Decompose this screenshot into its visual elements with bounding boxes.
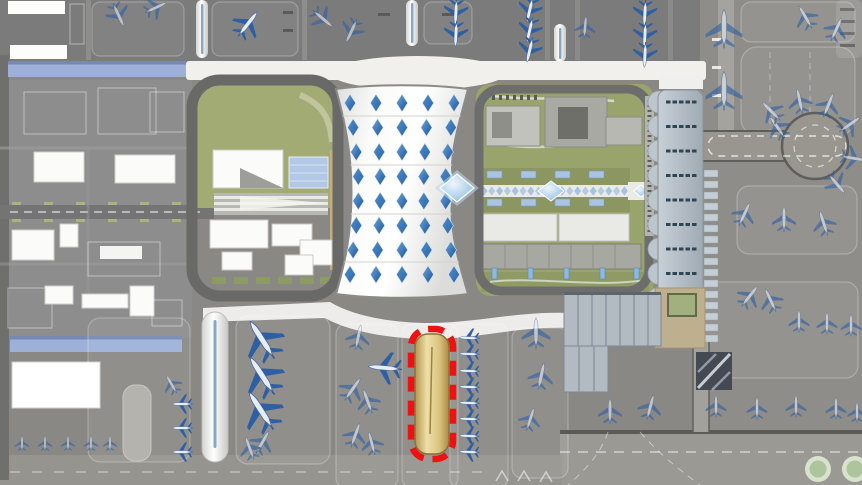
bay-skylight-dash [686,101,691,104]
axis-skylight-rect [589,171,604,178]
building [10,45,67,59]
bay-skylight-dash [686,223,691,226]
large-building [12,362,100,408]
bay-skylight-dash [666,199,671,202]
stand-bar [704,335,718,342]
axis-skylight-rect [555,199,570,206]
stand-bar [704,313,718,320]
blue-canopy-tick [600,268,605,279]
bay-skylight-dash [666,272,671,275]
green-roof-building [668,294,696,316]
gtc-south-buildings [481,214,649,292]
blue-canopy-tick [528,268,533,279]
bay-skylight-dash [666,125,671,128]
stand-bar [704,258,718,265]
stand-bar [704,192,718,199]
blue-canopy-tick [492,268,497,279]
bay-skylight-dash [679,272,684,275]
bay-skylight-dash [686,248,691,251]
stand-bar [704,203,718,210]
bay-skylight-dash [666,248,671,251]
bay-skylight-dash [679,248,684,251]
bay-skylight-dash [673,125,678,128]
bay-skylight-dash [686,125,691,128]
bay-skylight-dash [692,174,697,177]
bay-skylight-dash [673,101,678,104]
bay-skylight-dash [679,125,684,128]
bay-skylight-dash [692,248,697,251]
rail-platforms [214,193,328,215]
stand-bar [704,170,718,177]
bay-skylight-dash [692,101,697,104]
stand-pad [123,385,151,461]
bay-skylight-dash [666,174,671,177]
bay-skylight-dash [692,223,697,226]
bay-skylight-dash [673,150,678,153]
bay-skylight-dash [679,101,684,104]
stand-bar [704,236,718,243]
bay-skylight-dash [692,125,697,128]
highlighted-stand-pier[interactable] [411,329,453,459]
gtc-block [476,84,654,296]
axis-skylight-rect [521,171,536,178]
bay-skylight-dash [686,150,691,153]
stand-bar [704,324,718,331]
bay-skylight-dash [673,248,678,251]
terminal-main [330,85,479,298]
bay-skylight-dash [686,199,691,202]
stand-bar [704,280,718,287]
bay-skylight-dash [673,223,678,226]
bay-skylight-dash [692,199,697,202]
stand-bar [704,247,718,254]
west-edge-road [0,55,9,480]
bay-skylight-dash [686,174,691,177]
gtc-axis [478,168,654,212]
hatched-ramp [696,352,732,390]
road-edge [560,430,862,434]
stand-bar [704,181,718,188]
tree [810,461,827,478]
blue-canopy-tick [634,268,639,279]
bay-skylight-dash [686,272,691,275]
blue-canopy-tick [564,268,569,279]
stand-bar [704,291,718,298]
stand-bar [704,225,718,232]
axis-skylight-rect [589,199,604,206]
bay-skylight-dash [666,150,671,153]
building [8,1,65,14]
bay-skylight-dash [679,199,684,202]
airport-plan [0,0,862,485]
axis-skylight-rect [487,199,502,206]
stand-bar [704,269,718,276]
bay-skylight-dash [692,272,697,275]
axis-skylight-rect [487,171,502,178]
axis-skylight-rect [521,199,536,206]
bay-skylight-dash [673,174,678,177]
bay-skylight-dash [679,150,684,153]
bay-skylight-dash [666,223,671,226]
bay-skylight-dash [673,199,678,202]
bay-skylight-dash [666,101,671,104]
bay-skylight-dash [679,223,684,226]
stand-bar [704,214,718,221]
bay-skylight-dash [692,150,697,153]
bay-skylight-dash [673,272,678,275]
bay-skylight-dash [679,174,684,177]
stand-bar [704,302,718,309]
axis-skylight-rect [555,171,570,178]
concourse-head [659,76,703,89]
